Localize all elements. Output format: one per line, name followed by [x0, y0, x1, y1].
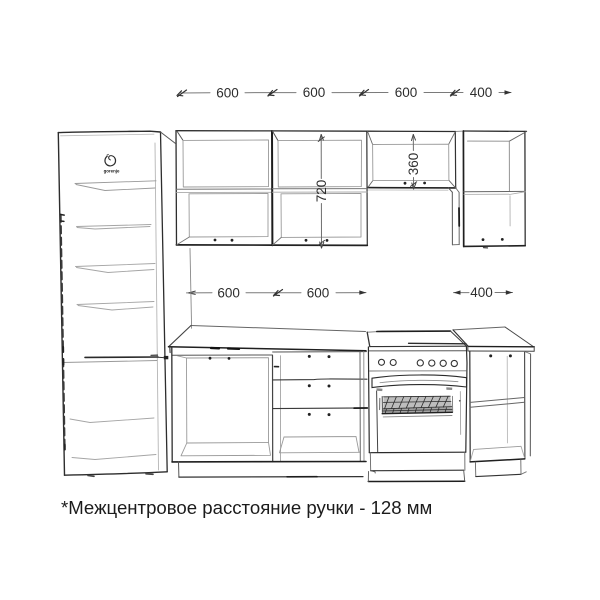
svg-text:360: 360: [406, 153, 421, 176]
svg-text:400: 400: [470, 285, 493, 300]
svg-text:720: 720: [314, 180, 329, 203]
svg-text:400: 400: [470, 85, 493, 100]
svg-text:600: 600: [217, 286, 240, 301]
svg-text:*Межцентровое расстояние ручки: *Межцентровое расстояние ручки - 128 мм: [61, 497, 432, 518]
svg-text:600: 600: [307, 285, 330, 300]
svg-text:600: 600: [395, 85, 418, 100]
svg-text:600: 600: [303, 85, 326, 100]
svg-text:600: 600: [216, 85, 239, 100]
svg-text:gorenje: gorenje: [104, 169, 120, 174]
